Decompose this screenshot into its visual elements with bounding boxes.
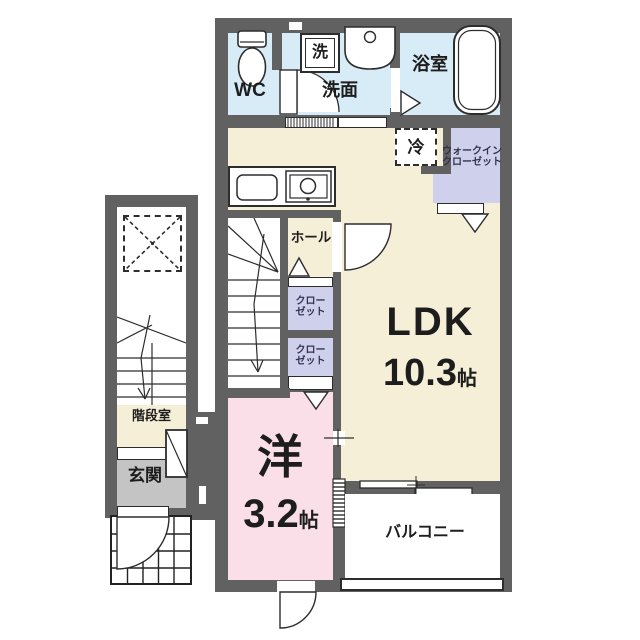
entrance-door-swing <box>114 514 174 574</box>
stairwell-door <box>117 447 169 460</box>
stairs-treads <box>228 218 280 390</box>
closet-upper-label: クロー ゼット <box>288 296 333 318</box>
washbasin-icon <box>342 26 398 72</box>
wall-junction-tick <box>322 427 356 449</box>
kitchen-counter <box>228 166 336 207</box>
bathtub-icon <box>452 24 502 116</box>
hall-closet-door-arrow <box>287 256 311 278</box>
closet-upper-line2: ゼット <box>288 307 333 318</box>
washer-label: 洗 <box>302 44 338 62</box>
western-room-top-wall <box>228 388 290 398</box>
ldk-size-unit: 帖 <box>457 368 477 390</box>
refrigerator-label: 冷 <box>397 138 435 157</box>
tower-stairs-treads <box>117 303 186 405</box>
western-closet-door-arrow <box>302 390 330 411</box>
closet-upper-door <box>288 277 333 287</box>
top-wall-tick <box>289 22 302 30</box>
washing-machine: 洗 <box>300 33 340 73</box>
western-size-value: 3.2 <box>243 492 299 536</box>
sliding-opening <box>338 117 387 128</box>
ldk-label: LDK <box>368 300 493 345</box>
balcony-label: バルコニー <box>365 524 485 542</box>
western-size-unit: 帖 <box>299 510 319 532</box>
closet-upper: クロー ゼット <box>288 287 333 330</box>
closet-lower-label: クロー ゼット <box>288 345 333 367</box>
washroom-label: 洗面 <box>305 80 375 100</box>
bathroom-label: 浴室 <box>402 54 458 74</box>
bottom-door-swing <box>274 588 322 632</box>
walk-in-closet-label: ウォークイン クローゼット <box>440 146 504 168</box>
entrance-wall-tick-h <box>196 417 208 424</box>
ldk-size-label: 10.3帖 <box>360 352 500 395</box>
wic-door-arrow <box>460 212 490 234</box>
bath-door-arrow <box>399 88 423 118</box>
refrigerator-space: 冷 <box>395 128 437 166</box>
shoe-cabinet <box>164 428 190 480</box>
wc-partition-wall <box>272 33 282 70</box>
wic-label-line2: クローゼット <box>440 157 504 168</box>
western-room-floor <box>228 392 333 580</box>
stair-void-box <box>123 215 182 272</box>
wic-label-line1: ウォークイン <box>440 146 504 157</box>
closet-upper-line1: クロー <box>288 296 333 307</box>
balcony-railing <box>340 578 504 591</box>
western-room-label: 洋 <box>238 432 322 484</box>
entrance-wall-tick-v <box>199 486 206 504</box>
ldk-door-swing <box>343 222 393 272</box>
floor-plan: WC 洗 洗面 浴室 冷 ウォークイン <box>0 0 640 640</box>
closet-lower-line2: ゼット <box>288 356 333 367</box>
western-room-size: 3.2帖 <box>228 492 334 537</box>
ldk-size-value: 10.3 <box>383 352 457 394</box>
wc-label: WC <box>226 80 274 101</box>
western-room-window <box>332 478 346 528</box>
closet-lower-line1: クロー <box>288 345 333 356</box>
hall-label: ホール <box>284 230 338 245</box>
stair-void-x <box>125 217 180 270</box>
walk-in-closet-lower <box>433 174 500 203</box>
closet-lower: クロー ゼット <box>288 338 333 376</box>
hall-doorway <box>332 222 342 272</box>
accordion-door <box>285 117 338 128</box>
closet-lower-door <box>288 376 333 390</box>
stairwell-label: 階段室 <box>117 409 186 424</box>
